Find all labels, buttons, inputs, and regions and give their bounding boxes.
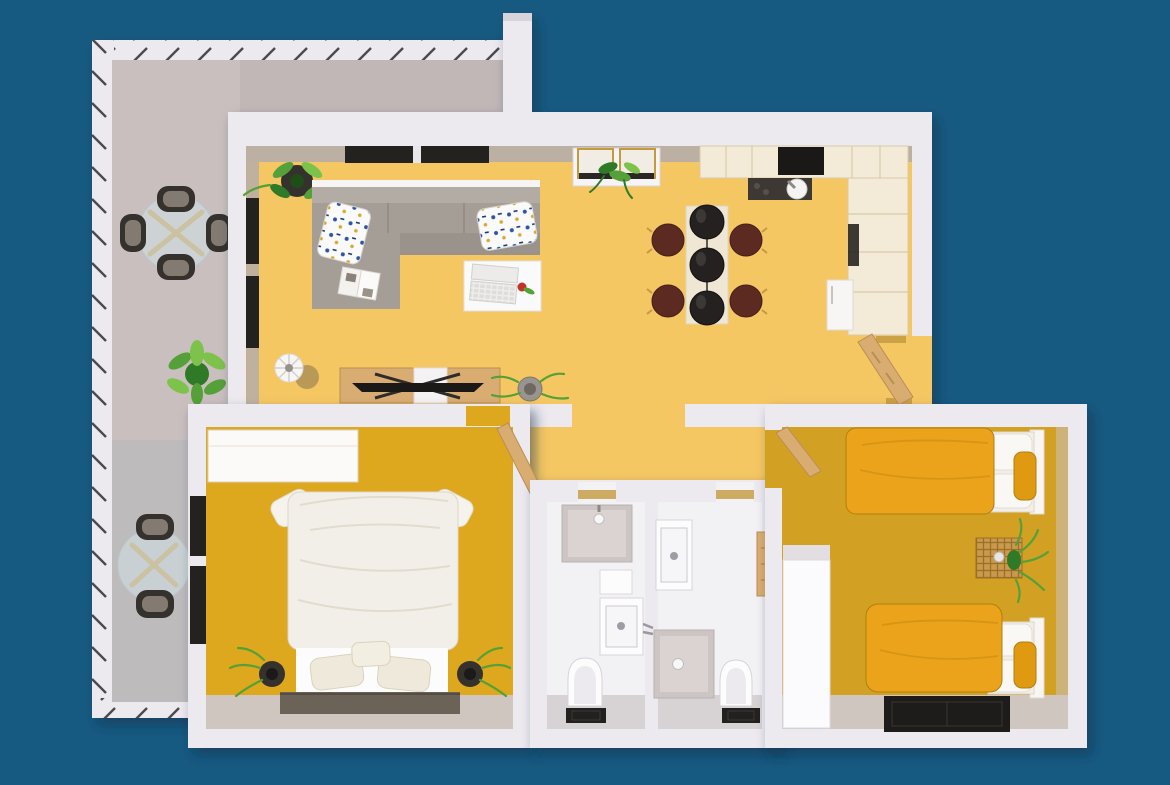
dining-chair bbox=[652, 285, 684, 317]
window-left-1 bbox=[246, 198, 259, 264]
chair-west-seat bbox=[125, 220, 141, 246]
toilet-seat bbox=[574, 666, 596, 704]
fridge bbox=[827, 280, 853, 330]
pendant-lamps bbox=[690, 205, 724, 325]
bed-platform bbox=[280, 692, 460, 714]
floor-plan-render bbox=[0, 0, 1170, 785]
vanity-faucet bbox=[617, 622, 625, 630]
wardrobe bbox=[783, 560, 830, 728]
plant-soil bbox=[290, 174, 304, 188]
wall-shelf bbox=[600, 570, 632, 594]
wardrobe-top-piece bbox=[783, 545, 830, 561]
vanity-faucet bbox=[670, 552, 678, 560]
bedroom-2-door-opening bbox=[765, 430, 782, 488]
chair-north-seat bbox=[163, 191, 189, 207]
window-mullion bbox=[413, 146, 421, 163]
balcony-railing-left bbox=[92, 40, 114, 718]
shower-drain bbox=[594, 514, 604, 524]
cup bbox=[994, 552, 1004, 562]
bathrooms bbox=[547, 482, 778, 729]
pendant-lamp bbox=[690, 205, 724, 239]
shower-drain bbox=[673, 659, 684, 670]
built-in-oven bbox=[848, 224, 859, 266]
orange-duvet bbox=[866, 604, 1002, 692]
flat-tv bbox=[352, 383, 484, 392]
bedroom-1-door-opening bbox=[466, 406, 510, 426]
bed-pillow-small bbox=[351, 641, 390, 667]
magazine-photo bbox=[345, 273, 356, 283]
wardrobe bbox=[208, 430, 358, 482]
window-top-1 bbox=[345, 146, 415, 163]
dining-chair bbox=[652, 224, 684, 256]
vase-center bbox=[285, 364, 293, 372]
floor-plan-svg bbox=[0, 0, 1170, 785]
sofa-backrest bbox=[312, 187, 540, 203]
plant-leaf bbox=[190, 340, 204, 366]
cooktop bbox=[778, 147, 824, 175]
living-room bbox=[244, 146, 932, 410]
chair-north-seat bbox=[142, 519, 168, 535]
dark-rug bbox=[884, 696, 1010, 732]
bathroom-1-threshold bbox=[578, 490, 616, 499]
double-bed bbox=[268, 486, 476, 714]
orange-side-pillow bbox=[1014, 452, 1036, 500]
sofa-back-top-edge bbox=[312, 180, 540, 187]
magazine-photo bbox=[362, 288, 373, 298]
balcony-railing-top bbox=[92, 40, 508, 62]
chair-south-seat bbox=[163, 260, 189, 276]
bedroom-1-window-1 bbox=[190, 496, 206, 556]
burner-knob bbox=[763, 189, 769, 195]
bathroom-2-threshold bbox=[716, 490, 754, 499]
bedroom-2 bbox=[765, 427, 1068, 732]
entry-threshold-top bbox=[876, 336, 906, 343]
wall-column bbox=[503, 13, 532, 129]
gold-chair-left-back bbox=[579, 173, 612, 179]
open-magazine bbox=[338, 267, 380, 300]
bedroom-1-window-2 bbox=[190, 566, 206, 644]
pendant-lamp bbox=[690, 291, 724, 325]
bedroom-1 bbox=[190, 406, 547, 729]
chair-east-seat bbox=[211, 220, 227, 246]
coffee-table bbox=[464, 261, 541, 311]
laptop bbox=[470, 264, 519, 304]
patterned-pillow-right bbox=[476, 200, 538, 251]
wall-column-cap bbox=[503, 13, 532, 21]
orange-side-pillow bbox=[1014, 642, 1036, 688]
chair-south-seat bbox=[142, 596, 168, 612]
burner-knob bbox=[754, 183, 760, 189]
window-left-2 bbox=[246, 276, 259, 348]
toilet-seat bbox=[726, 668, 746, 704]
single-bed-top bbox=[846, 428, 1044, 514]
window-top-2 bbox=[419, 146, 489, 163]
bedroom-2-right-wall-face bbox=[1056, 427, 1068, 695]
dining-chair bbox=[730, 224, 762, 256]
pendant-lamp bbox=[690, 248, 724, 282]
laptop-keyboard bbox=[470, 281, 517, 304]
dining-chair bbox=[730, 285, 762, 317]
plant-leaf bbox=[191, 383, 203, 405]
